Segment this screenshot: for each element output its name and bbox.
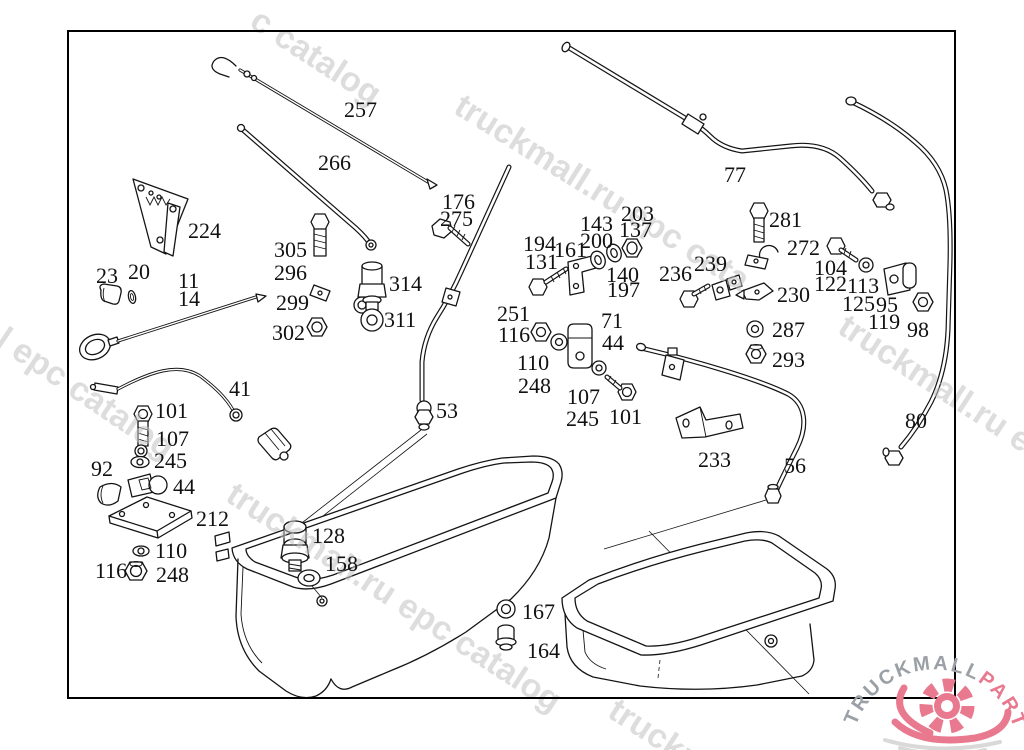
part-label-56: 56: [784, 453, 806, 478]
part-nut-302: [307, 318, 327, 336]
part-label-44: 44: [173, 474, 195, 499]
part-washer-110-left: [133, 546, 149, 556]
part-washer-110-248-center: [551, 334, 567, 350]
watermark-text: truckma: [602, 691, 735, 750]
part-nut-116-248-left: [125, 562, 147, 581]
part-label-314: 314: [389, 271, 422, 296]
part-label-14: 14: [178, 286, 200, 311]
part-label-101: 101: [155, 398, 188, 423]
part-label-248: 248: [518, 373, 551, 398]
part-label-20: 20: [128, 259, 150, 284]
part-label-92: 92: [91, 456, 113, 481]
part-label-41: 41: [229, 376, 251, 401]
part-label-137: 137: [619, 217, 652, 242]
part-label-200: 200: [580, 228, 613, 253]
part-pipe-56: [604, 342, 804, 549]
part-label-257: 257: [344, 97, 377, 122]
parts-diagram: c catalogtruckmall.ru epc catal epc cata…: [0, 0, 1024, 750]
part-washer-107-245-center: [592, 361, 606, 375]
part-label-287: 287: [772, 317, 805, 342]
part-clamp-296: [310, 272, 352, 301]
part-label-296: 296: [274, 260, 307, 285]
part-nut-293: [746, 345, 766, 364]
part-label-44: 44: [602, 330, 624, 355]
part-label-233: 233: [698, 447, 731, 472]
part-cap-92: [98, 484, 121, 506]
part-tube-266: [238, 125, 377, 251]
part-label-167: 167: [522, 599, 555, 624]
part-label-23: 23: [96, 263, 118, 288]
part-nut-95-119-98: [913, 293, 933, 311]
part-label-119: 119: [868, 309, 900, 334]
part-label-77: 77: [724, 162, 746, 187]
part-label-281: 281: [769, 207, 802, 232]
part-clip-113-125: [884, 263, 916, 295]
part-washer-287: [747, 321, 763, 337]
part-washer-167: [497, 600, 515, 618]
part-label-236: 236: [659, 261, 692, 286]
part-bracket-71-44: [568, 324, 592, 368]
part-label-128: 128: [312, 523, 345, 548]
part-label-164: 164: [527, 638, 560, 663]
part-label-299: 299: [276, 290, 309, 315]
part-label-302: 302: [272, 320, 305, 345]
part-label-245: 245: [154, 448, 187, 473]
part-label-230: 230: [777, 282, 810, 307]
part-label-224: 224: [188, 218, 221, 243]
part-bolt-305: [311, 214, 329, 256]
part-label-293: 293: [772, 347, 805, 372]
part-label-248: 248: [156, 562, 189, 587]
part-label-116: 116: [95, 558, 127, 583]
part-washer-311: [361, 309, 383, 331]
part-label-158: 158: [325, 551, 358, 576]
part-label-98: 98: [907, 317, 929, 342]
part-oil-pan-rear: [562, 532, 835, 690]
part-label-110: 110: [517, 350, 549, 375]
part-bracket-44-left: [128, 474, 167, 497]
part-bolt-281: [750, 203, 768, 242]
part-label-305: 305: [274, 237, 307, 262]
part-label-266: 266: [318, 150, 351, 175]
part-nut-251-116: [531, 323, 551, 341]
part-bolt-101-center: [607, 376, 636, 400]
part-label-53: 53: [436, 398, 458, 423]
part-bracket-224: [133, 179, 188, 256]
part-dipstick-11-14: [75, 294, 266, 365]
part-bolt-236: [680, 286, 708, 307]
part-oring-20: [127, 290, 137, 304]
part-label-101: 101: [609, 404, 642, 429]
part-label-311: 311: [384, 307, 416, 332]
part-label-197: 197: [607, 277, 640, 302]
part-label-110: 110: [155, 538, 187, 563]
part-bracket-233: [676, 407, 743, 438]
part-label-212: 212: [196, 506, 229, 531]
part-connector-146: [258, 428, 291, 460]
part-label-245: 245: [566, 406, 599, 431]
part-plate-212: [109, 497, 192, 538]
part-label-80: 80: [905, 408, 927, 433]
part-label-275: 275: [440, 206, 473, 231]
part-label-239: 239: [694, 251, 727, 276]
part-label-116: 116: [498, 322, 530, 347]
